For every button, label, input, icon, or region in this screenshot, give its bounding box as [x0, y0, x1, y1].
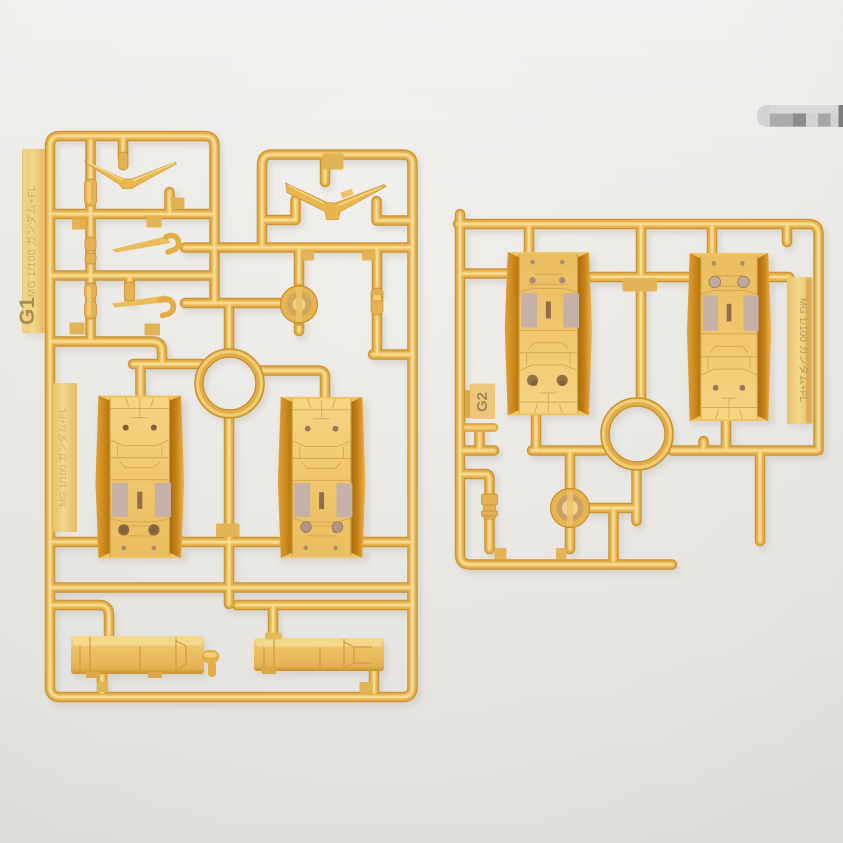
svg-text:MG 1/100 ガンダム+FL: MG 1/100 ガンダム+FL	[797, 298, 810, 403]
svg-text:2: 2	[150, 219, 160, 224]
svg-text:3: 3	[172, 201, 182, 206]
svg-text:1: 1	[73, 326, 83, 331]
svg-text:25: 25	[329, 156, 340, 168]
svg-text:G1: G1	[16, 297, 39, 325]
svg-text:1: 1	[74, 221, 84, 226]
svg-text:G2: G2	[474, 392, 491, 412]
svg-text:MG 1/100 ガンダム+FL: MG 1/100 ガンダム+FL	[25, 185, 38, 297]
svg-text:2: 2	[148, 327, 158, 332]
svg-text:MG 1/100 ガンダム+FL: MG 1/100 ガンダム+FL	[57, 408, 69, 507]
